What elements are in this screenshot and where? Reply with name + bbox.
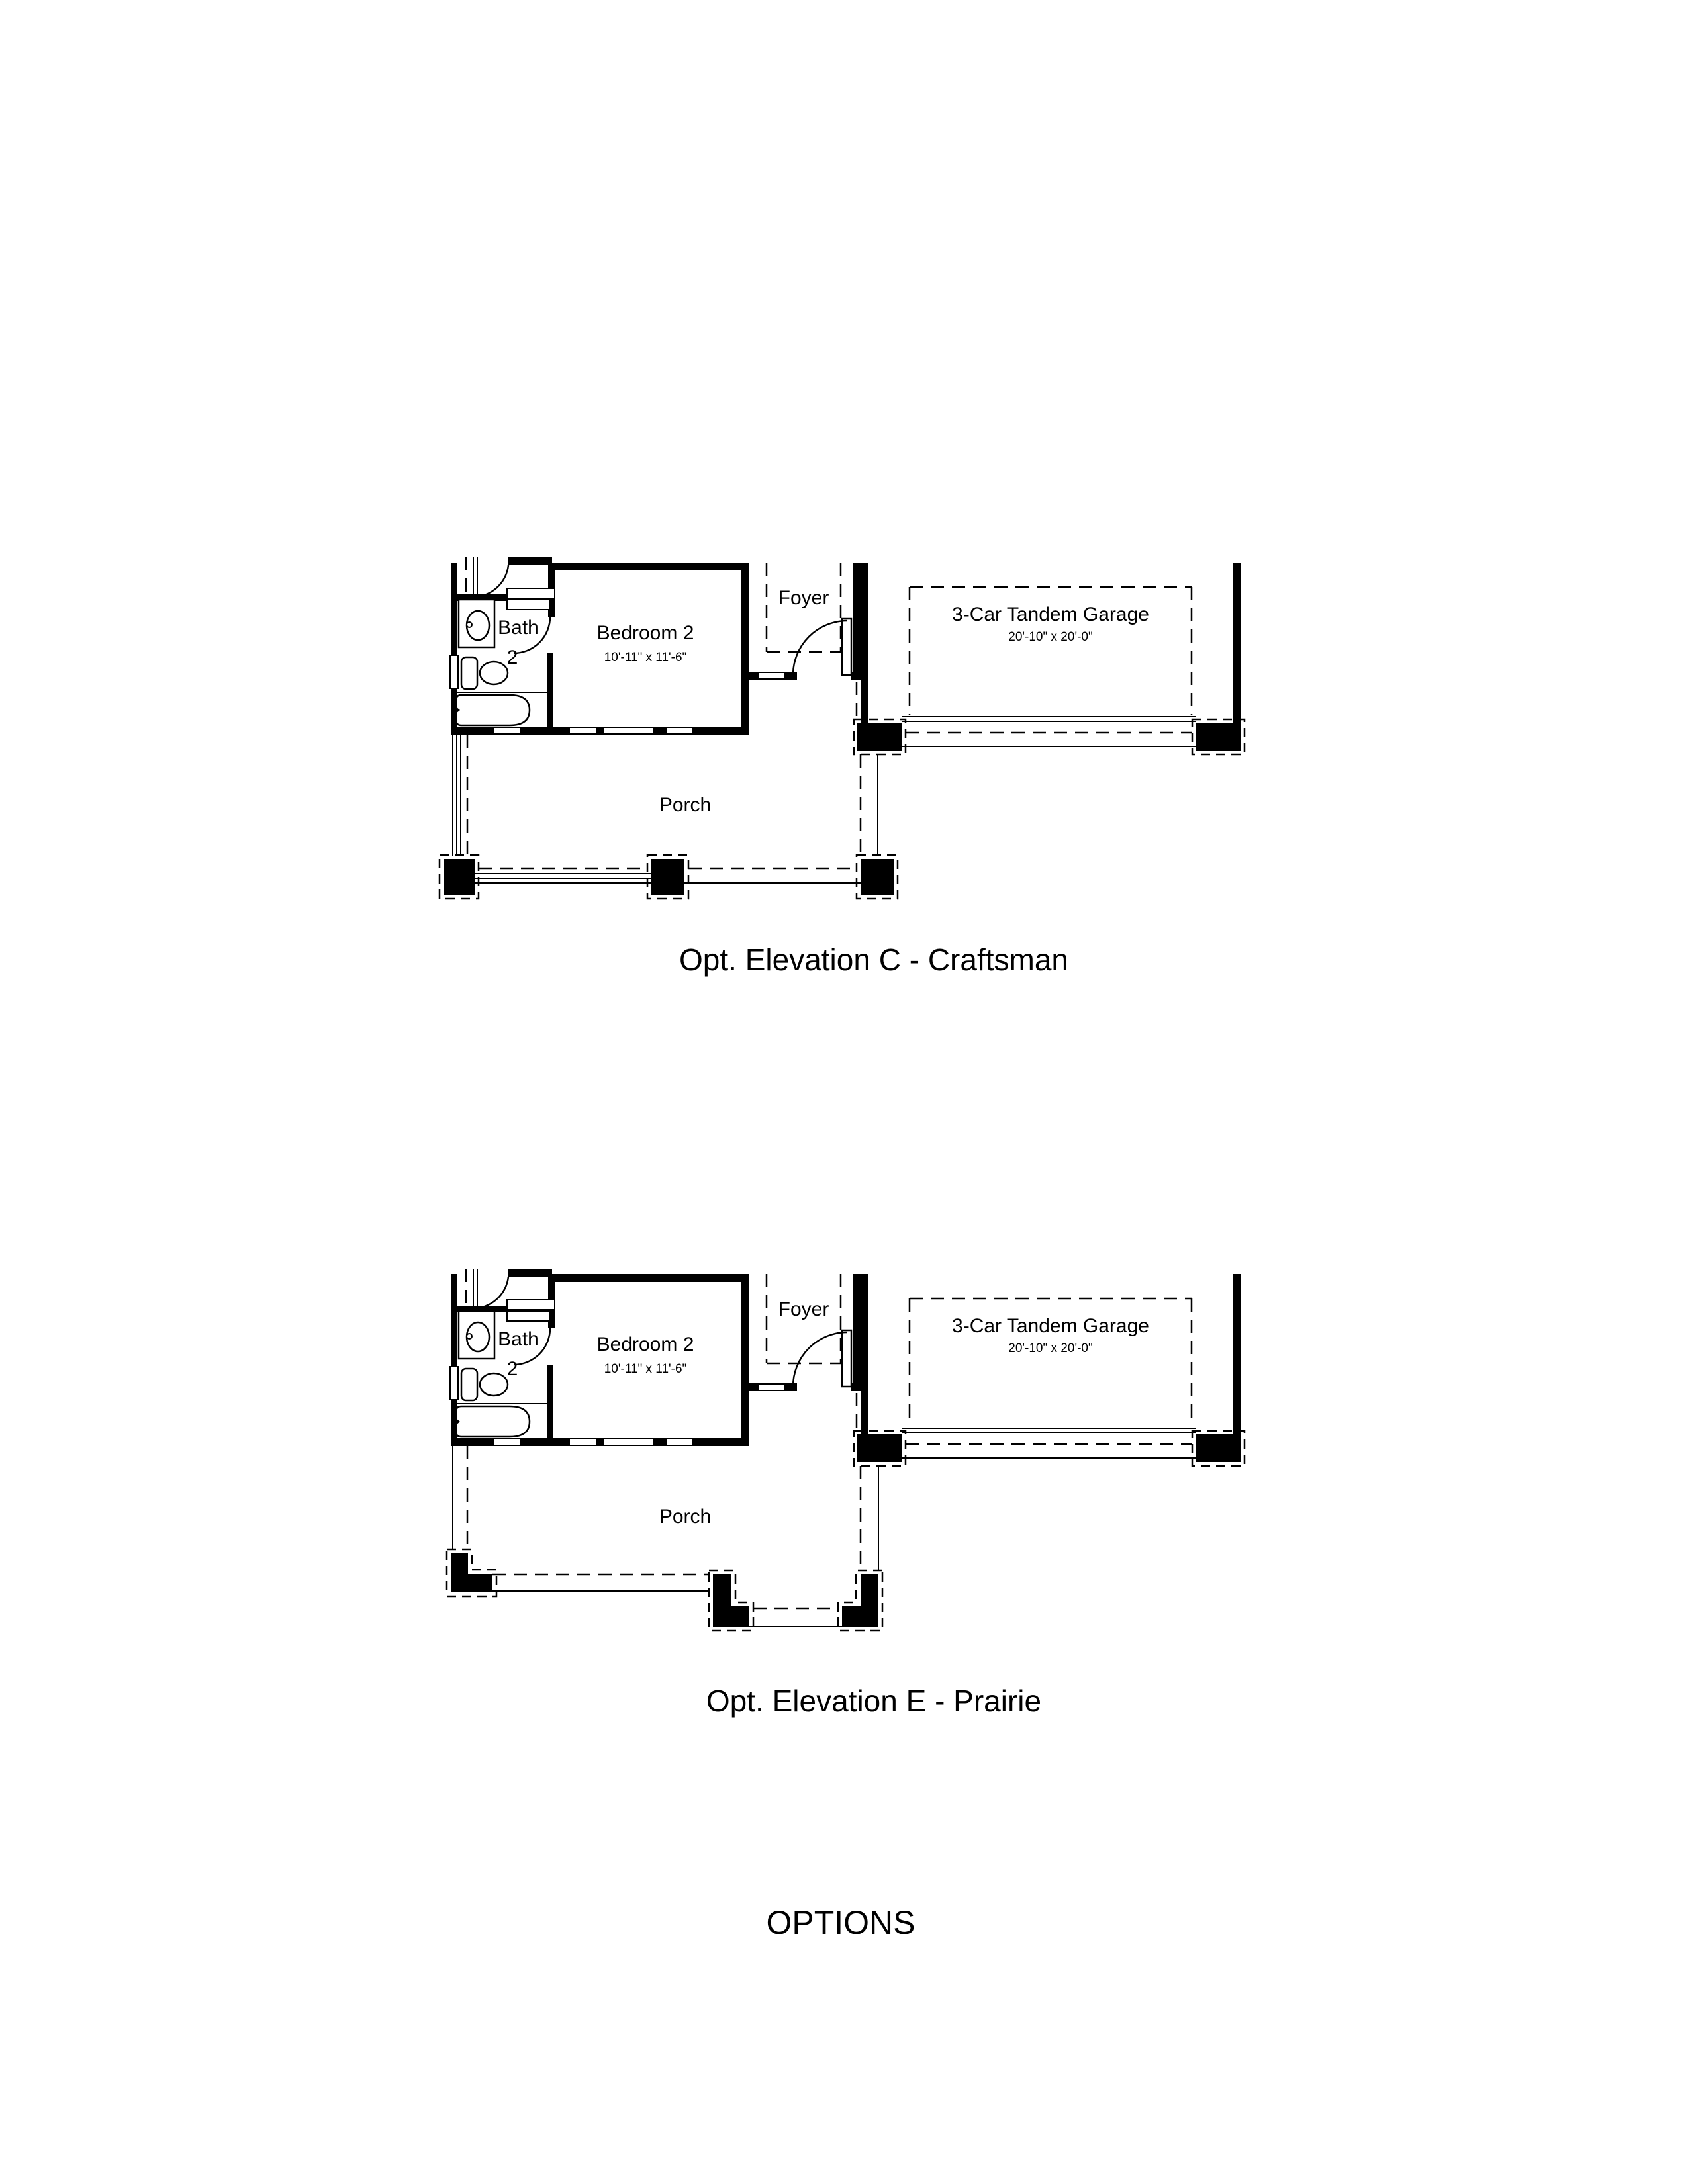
room-dims-garage: 20'-10" x 20'-0" (1008, 1342, 1092, 1355)
room-label-porch: Porch (659, 1506, 711, 1527)
room-label-bath-2: 2 (507, 1358, 518, 1380)
porch-column (861, 859, 894, 895)
entry-column-right (842, 1574, 878, 1627)
toilet-tank-icon (461, 657, 477, 689)
closet-shelf (507, 1300, 555, 1310)
wall (547, 1365, 553, 1439)
wall (548, 1274, 749, 1282)
toilet-bowl-icon (480, 1373, 508, 1396)
closet-shelf (507, 1311, 549, 1321)
room-dims-bedroom-2: 10'-11" x 11'-6" (604, 1362, 687, 1376)
bathtub-icon (456, 1406, 530, 1437)
window (450, 655, 458, 688)
caption-elevation-c: Opt. Elevation C - Craftsman (30, 944, 1688, 975)
toilet-bowl-icon (480, 662, 508, 684)
room-dims-bedroom-2: 10'-11" x 11'-6" (604, 651, 687, 664)
wall (861, 1274, 868, 1434)
wall (853, 1274, 861, 1391)
sink-faucet-icon (467, 622, 472, 627)
options-sheet-page: { "document": { "kind": "floor-plan-opti… (0, 0, 1688, 2184)
room-label-bath: Bath (498, 1328, 539, 1350)
wall (508, 1269, 552, 1277)
window (493, 727, 521, 734)
closet-shelf (507, 600, 549, 610)
window (604, 727, 654, 734)
window (759, 672, 785, 679)
wall (1233, 563, 1241, 723)
room-label-bedroom-2: Bedroom 2 (597, 1334, 694, 1355)
options-heading: OPTIONS (0, 1906, 1685, 1939)
wall (741, 563, 749, 733)
bathtub-icon (456, 695, 530, 725)
wall (1233, 1274, 1241, 1434)
floor-plan-elevation-c-craftsman: Bath2Bedroom 210'-11" x 11'-6"Foyer3-Car… (440, 557, 1244, 899)
entry-door-swing (793, 1332, 847, 1387)
window (666, 727, 692, 734)
room-label-bedroom-2: Bedroom 2 (597, 622, 694, 644)
room-label-bath-2: 2 (507, 647, 518, 668)
window (759, 1384, 785, 1390)
closet-shelf (507, 588, 555, 598)
window (569, 1439, 597, 1445)
room-dims-garage: 20'-10" x 20'-0" (1008, 630, 1092, 644)
window (569, 727, 597, 734)
room-label-bath: Bath (498, 617, 539, 639)
entry-column-left (713, 1574, 749, 1627)
window (493, 1439, 521, 1445)
wall (451, 563, 457, 655)
wall (861, 563, 868, 723)
room-label-foyer: Foyer (778, 587, 829, 609)
wall (741, 1274, 749, 1445)
caption-elevation-e: Opt. Elevation E - Prairie (30, 1686, 1688, 1716)
entry-door-leaf (842, 1330, 851, 1387)
room-label-porch: Porch (659, 794, 711, 816)
window (666, 1439, 692, 1445)
window (604, 1439, 654, 1445)
wall (508, 557, 552, 565)
hall-door-swing (473, 1277, 508, 1308)
porch-column (444, 859, 475, 895)
floor-plans-canvas: Bath2Bedroom 210'-11" x 11'-6"Foyer3-Car… (0, 0, 1688, 2184)
floor-plan-elevation-e-prairie: Bath2Bedroom 210'-11" x 11'-6"Foyer3-Car… (447, 1269, 1244, 1631)
room-label-garage: 3-Car Tandem Garage (952, 604, 1149, 625)
room-label-garage: 3-Car Tandem Garage (952, 1315, 1149, 1337)
room-label-foyer: Foyer (778, 1298, 829, 1320)
entry-door-swing (793, 621, 847, 675)
porch-column (651, 859, 684, 895)
wall (548, 563, 749, 570)
entry-door-leaf (842, 619, 851, 675)
wall (451, 1274, 457, 1367)
hall-door-swing (473, 565, 508, 597)
window (450, 1367, 458, 1400)
toilet-tank-icon (461, 1369, 477, 1400)
wall (853, 563, 861, 680)
wall (547, 653, 553, 728)
sink-faucet-icon (467, 1334, 472, 1339)
